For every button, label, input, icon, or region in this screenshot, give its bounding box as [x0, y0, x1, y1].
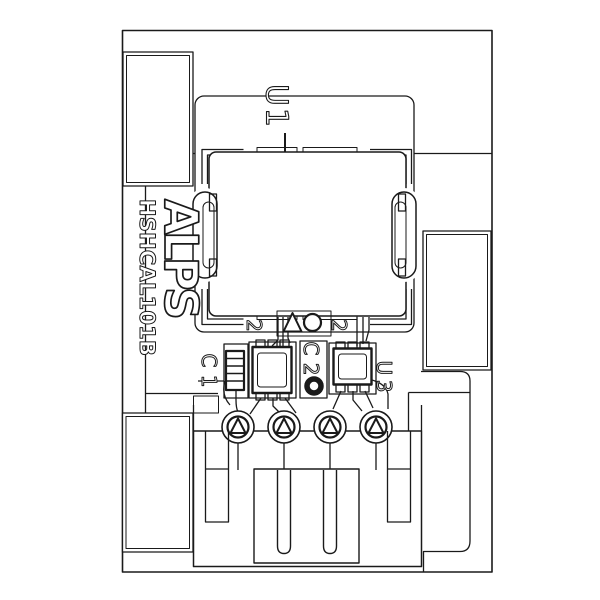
ref-c2-label: C2 [299, 342, 323, 377]
sensor-u1-area: U1 [193, 84, 416, 332]
part-number-label: HSHCAL101B [135, 199, 159, 357]
right-step-line [409, 393, 471, 432]
ref-u1-label: U1 [259, 84, 294, 128]
pad-top-left [123, 52, 193, 186]
via-ring-c2 [307, 379, 321, 393]
connector-corner-pad [194, 396, 219, 413]
pad-bottom-left [123, 413, 194, 552]
connector-pin-2 [324, 470, 337, 554]
module-bottom-right-outline [421, 372, 470, 572]
pin-mark-left: 2 [242, 319, 266, 333]
connector-slot-left [206, 431, 229, 522]
connector-interior [206, 431, 411, 563]
through-holes [222, 411, 392, 443]
fiducial-circle [304, 314, 321, 331]
pin-mark-right: 2 [327, 319, 351, 333]
through-hole-3 [314, 411, 346, 443]
ref-c1-label: C1 [197, 354, 221, 389]
pad-right [423, 231, 491, 370]
capacitor-c1 [226, 351, 244, 390]
pcb-assembly-drawing: U1 [0, 0, 600, 600]
sensor-body [209, 152, 406, 316]
ic-left [253, 340, 292, 400]
drawing-canvas: U1 [0, 0, 600, 600]
oval-pad-right [392, 192, 416, 278]
through-hole-2 [268, 411, 300, 443]
through-hole-1 [222, 411, 254, 443]
connector-cavity [254, 469, 359, 563]
ic-right-u3 [334, 342, 372, 392]
connector-pin-1 [278, 470, 291, 554]
brand-label: ALPS [154, 199, 208, 321]
connector-slot-right [388, 431, 411, 522]
